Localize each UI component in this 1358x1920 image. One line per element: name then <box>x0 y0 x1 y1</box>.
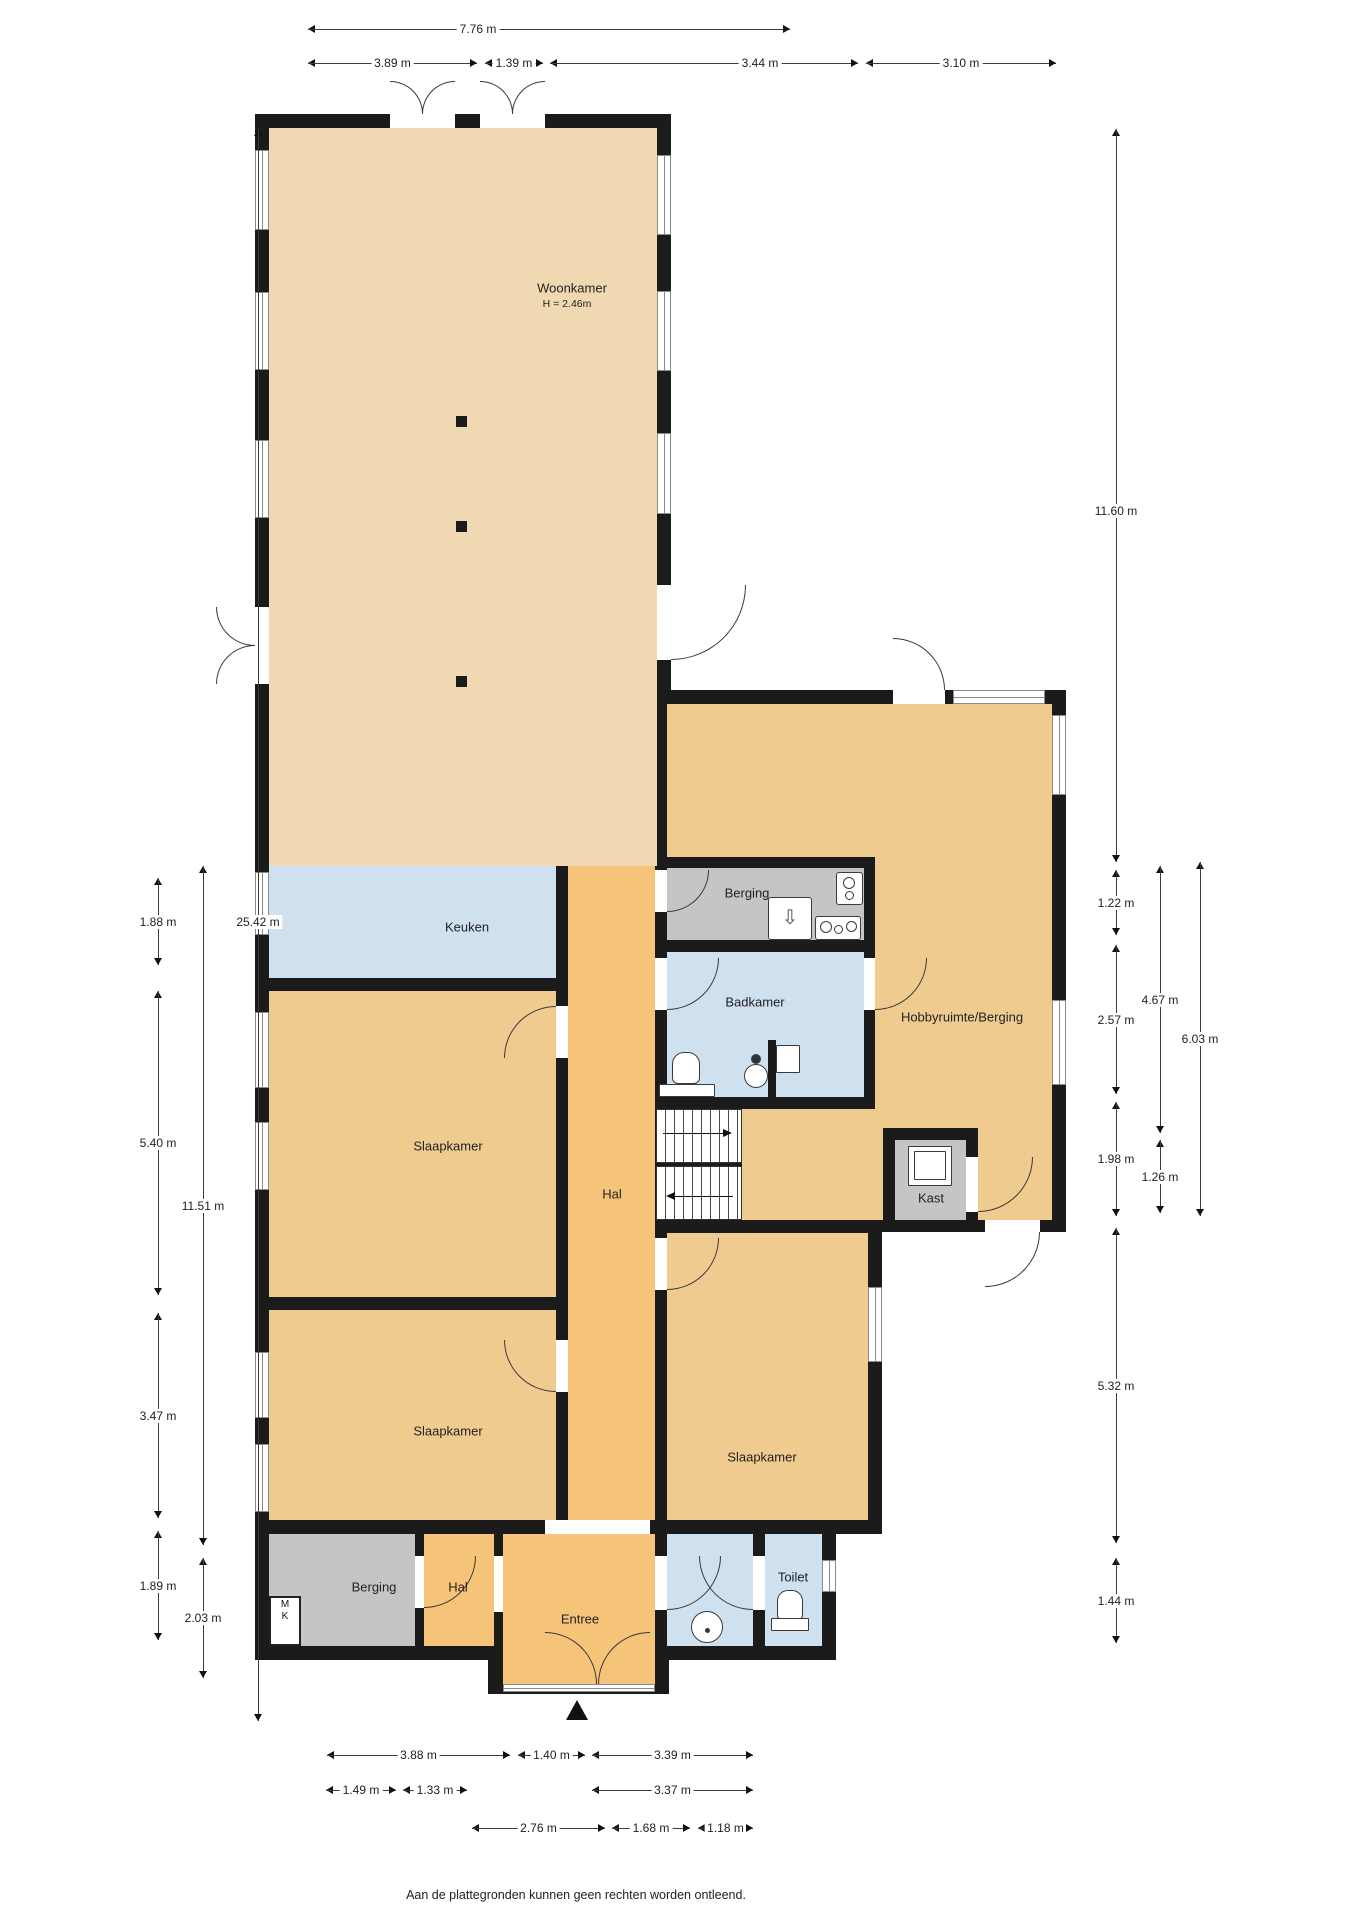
toilet-cistern-icon <box>659 1084 715 1097</box>
toilet-icon-toilet <box>777 1590 803 1620</box>
label-hal: Hal <box>602 1187 622 1202</box>
dimension-right-126: 1.26 m <box>1154 1140 1166 1213</box>
door-opening-slaapkamer-2 <box>556 1340 568 1392</box>
room-woonkamer <box>269 128 657 866</box>
door-swing-arc <box>480 81 513 114</box>
label-hal-bottom: Hal <box>448 1580 468 1595</box>
boiler-dial-icon <box>843 877 855 889</box>
dimension-bottom-140: 1.40 m <box>518 1749 585 1761</box>
dimension-top-344: 3.44 m <box>550 57 858 69</box>
meterkast-label-k: K <box>271 1611 299 1623</box>
mechanical-unit-inner-icon <box>914 1151 946 1180</box>
label-slaapkamer-1: Slaapkamer <box>413 1139 482 1154</box>
toilet-base-icon <box>771 1618 809 1631</box>
washbasin-icon-badkamer <box>744 1064 768 1088</box>
dimension-right-467: 4.67 m <box>1154 866 1166 1133</box>
door-opening-badkamer-hobby <box>864 958 875 1010</box>
door-opening-hobbyruimte-top <box>893 690 945 704</box>
window-hobbyruimte <box>953 690 1045 704</box>
dimension-right-532: 5.32 m <box>1110 1228 1122 1543</box>
dimension-right-198: 1.98 m <box>1110 1102 1122 1216</box>
door-opening-berging-bottom <box>415 1556 424 1608</box>
toilet-icon-badkamer <box>672 1052 700 1084</box>
dimension-top-139: 1.39 m <box>485 57 543 69</box>
window <box>657 291 671 371</box>
door-opening-terrace-right <box>480 114 545 128</box>
column-dot <box>456 676 467 687</box>
dimension-right-603: 6.03 m <box>1194 862 1206 1216</box>
staircase-down-arrow <box>675 1196 733 1197</box>
door-opening-terrace-left <box>390 114 455 128</box>
entrance-arrow-icon <box>566 1700 588 1720</box>
disclaimer-text: Aan de plattegronden kunnen geen rechten… <box>406 1888 746 1902</box>
window-hobbyruimte <box>1052 715 1066 795</box>
door-opening-hobbyruimte-bottom <box>985 1220 1040 1232</box>
window-hobbyruimte <box>1052 1000 1066 1085</box>
dimension-left-188: 1.88 m <box>152 878 164 965</box>
dimension-top-310: 3.10 m <box>866 57 1056 69</box>
door-opening-slaapkamer-3 <box>655 1238 667 1290</box>
door-opening-washroom <box>655 1556 667 1610</box>
room-hobbyruimte-upper <box>667 704 1052 857</box>
entree-glass-front <box>503 1684 655 1692</box>
label-hobbyruimte: Hobbyruimte/Berging <box>901 1010 1023 1025</box>
door-swing-arc <box>512 81 545 114</box>
wall-badkamer-stub <box>768 1040 776 1097</box>
staircase-divider <box>656 1163 742 1166</box>
dimension-top-776: 7.76 m <box>308 23 790 35</box>
door-opening-berging-top <box>655 870 667 912</box>
drain-dot-icon <box>705 1628 710 1633</box>
staircase-up-arrow <box>663 1133 723 1134</box>
dimension-left-2542: 25.42 m <box>252 129 264 1721</box>
door-opening-right-wall <box>657 585 671 660</box>
door-swing-arc <box>216 607 255 646</box>
label-kast: Kast <box>918 1191 944 1206</box>
dimension-left-1151: 11.51 m <box>197 866 209 1545</box>
dimension-right-144: 1.44 m <box>1110 1558 1122 1643</box>
meterkast-label-m: M <box>271 1599 299 1611</box>
label-toilet: Toilet <box>778 1570 808 1585</box>
label-woonkamer-height: H = 2.46m <box>543 298 592 310</box>
label-berging-top: Berging <box>725 886 770 901</box>
door-opening-badkamer <box>655 958 667 1010</box>
window <box>657 433 671 514</box>
label-keuken: Keuken <box>445 920 489 935</box>
column-dot <box>456 521 467 532</box>
door-opening-toilet <box>753 1556 765 1610</box>
dimension-bottom-337: 3.37 m <box>592 1784 753 1796</box>
dimension-top-389: 3.89 m <box>308 57 477 69</box>
dimension-right-257: 2.57 m <box>1110 945 1122 1094</box>
label-berging-bottom: Berging <box>352 1580 397 1595</box>
door-swing-arc <box>671 585 746 660</box>
door-swing-arc <box>390 81 423 114</box>
dimension-bottom-118: 1.18 m <box>698 1822 753 1834</box>
dimension-bottom-133: 1.33 m <box>403 1784 467 1796</box>
sink-bowl-icon <box>820 921 832 933</box>
dimension-bottom-149: 1.49 m <box>326 1784 396 1796</box>
column-dot <box>456 416 467 427</box>
dimension-left-203: 2.03 m <box>197 1558 209 1678</box>
shower-panel-icon <box>776 1045 800 1073</box>
dimension-left-347: 3.47 m <box>152 1313 164 1518</box>
dimension-bottom-276: 2.76 m <box>472 1822 605 1834</box>
label-woonkamer: Woonkamer <box>537 281 607 296</box>
passage-hal-entree <box>545 1520 650 1534</box>
label-slaapkamer-2: Slaapkamer <box>413 1424 482 1439</box>
label-slaapkamer-3: Slaapkamer <box>727 1450 796 1465</box>
dimension-bottom-168: 1.68 m <box>612 1822 690 1834</box>
dimension-left-189: 1.89 m <box>152 1531 164 1640</box>
room-keuken <box>269 866 556 978</box>
meterkast-box: M K <box>269 1596 301 1646</box>
door-opening-slaapkamer-1 <box>556 1006 568 1058</box>
label-badkamer: Badkamer <box>725 995 784 1010</box>
door-swing-arc <box>216 645 255 684</box>
window-toilet <box>822 1560 836 1592</box>
window-slaapkamer-3 <box>868 1287 882 1362</box>
label-entree: Entree <box>561 1612 599 1627</box>
dimension-right-122: 1.22 m <box>1110 870 1122 935</box>
door-opening-kast <box>966 1157 978 1212</box>
washbasin-icon-washroom <box>691 1611 723 1643</box>
dimension-right-1160: 11.60 m <box>1110 129 1122 862</box>
sink-bowl-icon <box>834 925 843 934</box>
dimension-bottom-339: 3.39 m <box>592 1749 753 1761</box>
passage-halb-entree <box>494 1556 503 1612</box>
floor-plan: ⇩ M K Woonkamer H = 2.46m Keuken Berging… <box>0 0 1358 1920</box>
door-swing-arc <box>422 81 455 114</box>
window <box>657 155 671 235</box>
room-landing <box>742 1109 883 1220</box>
boiler-dial-icon <box>845 891 854 900</box>
faucet-icon-badkamer <box>751 1054 761 1064</box>
door-swing-arc <box>893 638 945 690</box>
dimension-left-540: 5.40 m <box>152 991 164 1295</box>
dimension-bottom-388: 3.88 m <box>327 1749 510 1761</box>
door-swing-arc <box>985 1232 1040 1287</box>
washing-machine-icon: ⇩ <box>768 897 812 940</box>
sink-bowl-icon <box>846 921 857 932</box>
